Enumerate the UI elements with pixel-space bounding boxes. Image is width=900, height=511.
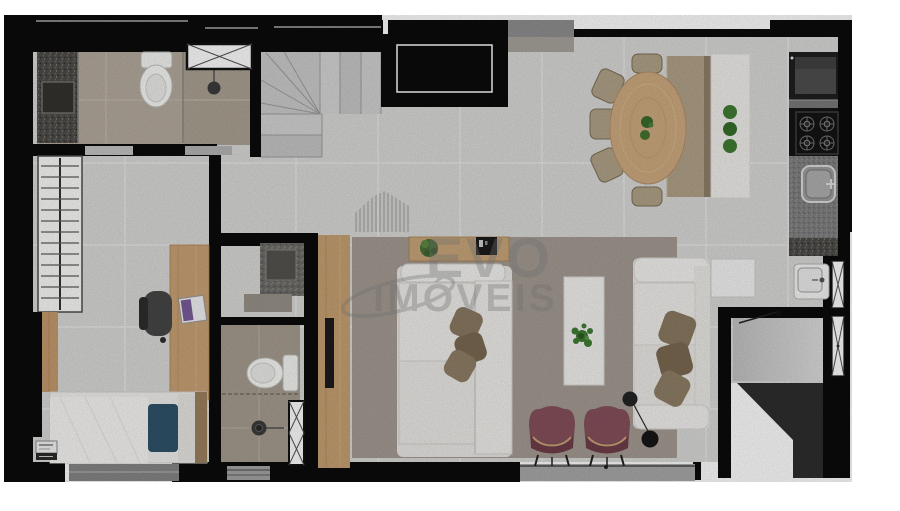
svg-text:IMÓVEIS: IMÓVEIS: [373, 276, 558, 320]
